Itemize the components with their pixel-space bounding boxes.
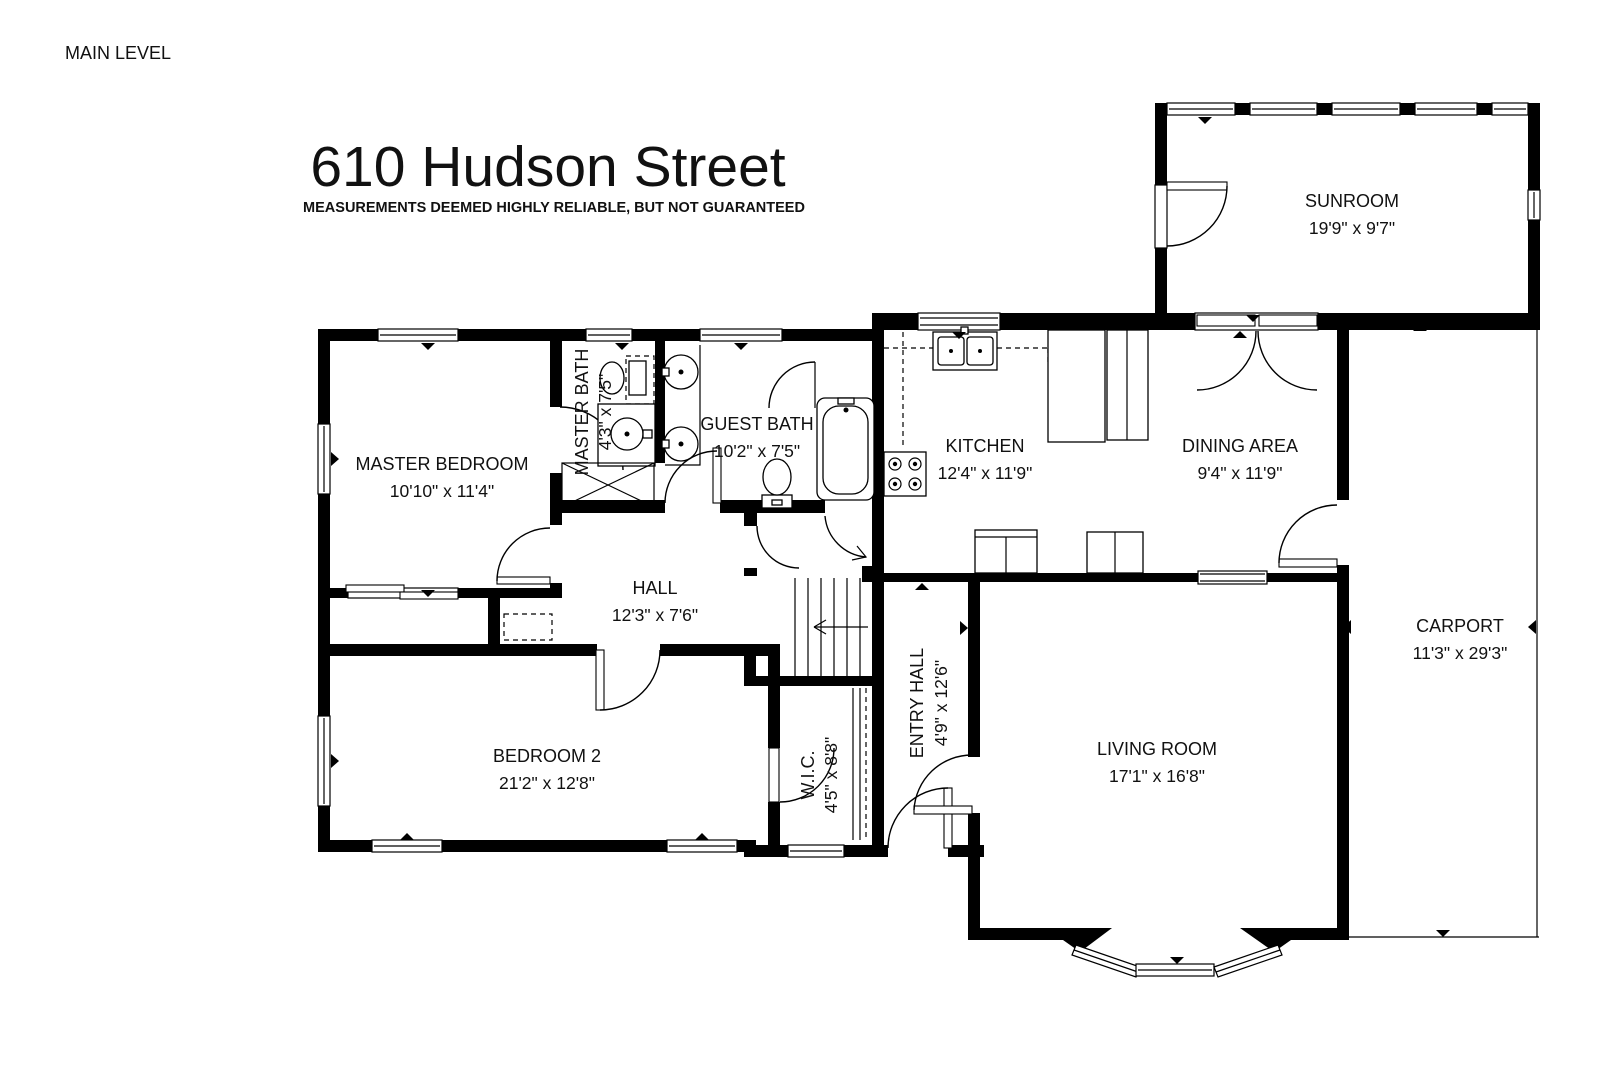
disclaimer-text: MEASUREMENTS DEEMED HIGHLY RELIABLE, BUT… [303,200,805,216]
master-bedroom-door [497,577,550,584]
svg-text:SUNROOM: SUNROOM [1305,191,1399,211]
stair-landing-arc [825,516,866,557]
room-label-master-bedroom: MASTER BEDROOM 10'10" x 11'4" [355,454,528,501]
svg-text:11'3" x 29'3": 11'3" x 29'3" [1413,643,1508,663]
room-label-wic: W.I.C. 4'5" x 8'8" [798,737,841,814]
svg-text:4'3" x 7'5": 4'3" x 7'5" [595,374,615,451]
svg-text:12'3" x 7'6": 12'3" x 7'6" [612,605,698,625]
front-door [944,788,952,848]
measure-ticks [331,117,1536,964]
room-label-carport: CARPORT 11'3" x 29'3" [1413,616,1508,663]
bedroom2-door [596,650,604,710]
staircase [795,578,868,676]
cabinet [975,530,1037,573]
svg-text:W.I.C.: W.I.C. [798,751,818,800]
svg-text:9'4" x 11'9": 9'4" x 11'9" [1198,463,1283,483]
svg-text:10'2" x 7'5": 10'2" x 7'5" [714,441,800,461]
svg-text:19'9" x 9'7": 19'9" x 9'7" [1309,218,1395,238]
svg-text:LIVING ROOM: LIVING ROOM [1097,739,1217,759]
room-label-dining-area: DINING AREA 9'4" x 11'9" [1182,436,1298,483]
svg-text:KITCHEN: KITCHEN [945,436,1024,456]
svg-text:17'1" x 16'8": 17'1" x 16'8" [1109,766,1205,786]
wic-door [769,748,779,802]
guest-bath-toilet [762,459,792,508]
svg-text:12'4" x 11'9": 12'4" x 11'9" [938,463,1033,483]
svg-text:21'2" x 12'8": 21'2" x 12'8" [499,773,595,793]
floor-plan: MAIN LEVEL 610 Hudson Street MEASUREMENT… [0,0,1620,1080]
guest-bath-vanity [662,345,700,465]
room-label-bedroom-2: BEDROOM 2 21'2" x 12'8" [493,746,601,793]
sunroom-door [1155,185,1167,248]
pantry-cabinet [1048,330,1105,442]
svg-text:10'10" x 11'4": 10'10" x 11'4" [390,481,494,501]
kitchen-sink [933,327,997,370]
entry-living-door [914,806,972,814]
hall-closet-shelf [504,614,552,640]
hall-landing-door [757,526,799,568]
svg-text:HALL: HALL [632,578,677,598]
svg-text:4'5" x 8'8": 4'5" x 8'8" [821,737,841,814]
room-label-hall: HALL 12'3" x 7'6" [612,578,698,625]
level-label: MAIN LEVEL [65,43,171,63]
dining-living-opening [1198,571,1267,584]
svg-text:MASTER BATH: MASTER BATH [572,349,592,476]
room-labels: SUNROOM 19'9" x 9'7" MASTER BEDROOM 10'1… [355,191,1507,813]
svg-text:GUEST BATH: GUEST BATH [700,414,813,434]
room-label-kitchen: KITCHEN 12'4" x 11'9" [938,436,1033,483]
cabinet [1087,532,1143,573]
room-label-entry-hall: ENTRY HALL 4'9" x 12'6" [907,648,951,758]
svg-text:ENTRY HALL: ENTRY HALL [907,648,927,758]
dining-carport-door [1279,559,1337,567]
svg-text:4'9" x 12'6": 4'9" x 12'6" [931,660,951,746]
room-label-living-room: LIVING ROOM 17'1" x 16'8" [1097,739,1217,786]
svg-text:DINING AREA: DINING AREA [1182,436,1298,456]
windows [318,103,1540,857]
svg-text:BEDROOM 2: BEDROOM 2 [493,746,601,766]
bathtub [817,398,874,500]
room-label-sunroom: SUNROOM 19'9" x 9'7" [1305,191,1399,238]
page-title: 610 Hudson Street [310,135,785,199]
room-label-guest-bath: GUEST BATH 10'2" x 7'5" [700,414,813,461]
bay-window [1063,928,1291,977]
svg-text:CARPORT: CARPORT [1416,616,1504,636]
stove [884,452,926,496]
svg-text:MASTER BEDROOM: MASTER BEDROOM [355,454,528,474]
wic-shelf [853,688,866,840]
